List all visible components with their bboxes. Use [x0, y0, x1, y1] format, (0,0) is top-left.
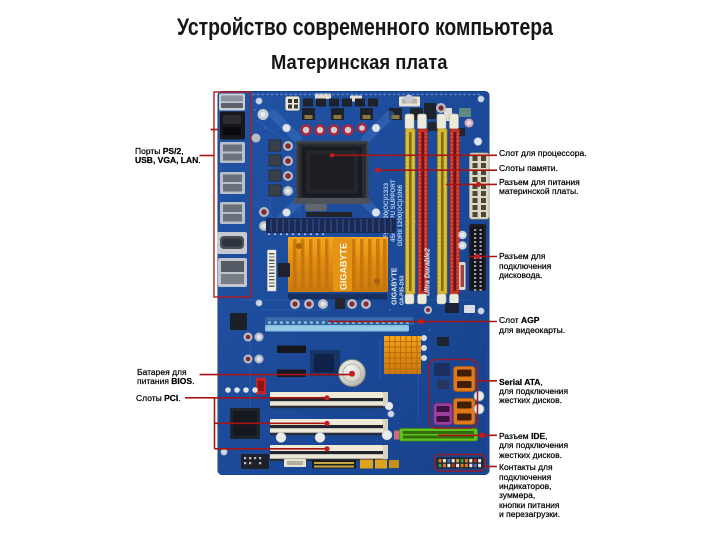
svg-text:GA-P35-DS3: GA-P35-DS3: [400, 275, 406, 305]
svg-text:GIGABYTE: GIGABYTE: [339, 243, 349, 290]
svg-text:Ultra Durable2: Ultra Durable2: [425, 248, 432, 296]
svg-text:DDRII 1200(OC)/1066: DDRII 1200(OC)/1066: [397, 184, 404, 246]
svg-text:GIGABYTE: GIGABYTE: [390, 267, 399, 305]
